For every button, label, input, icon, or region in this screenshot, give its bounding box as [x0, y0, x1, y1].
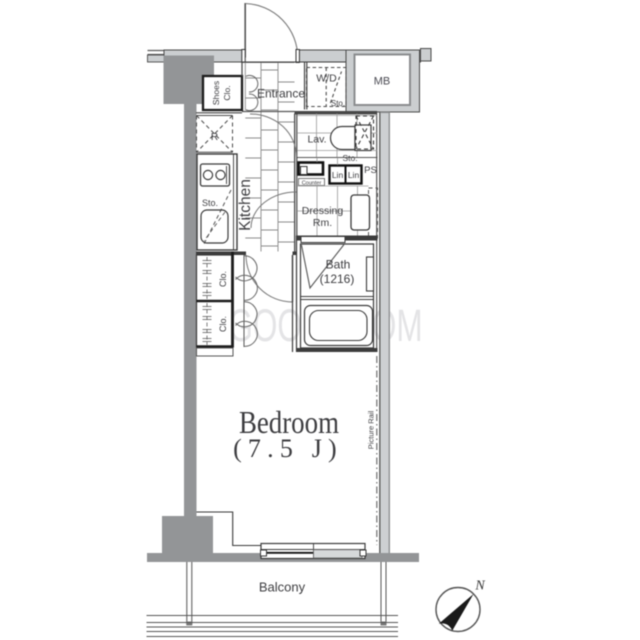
- svg-text:Picture Rail: Picture Rail: [367, 411, 376, 450]
- svg-text:Sto.: Sto.: [331, 99, 345, 108]
- svg-text:(1216): (1216): [320, 272, 355, 286]
- svg-text:N: N: [474, 579, 485, 594]
- svg-text:Clo.: Clo.: [218, 271, 228, 287]
- svg-text:Bath: Bath: [326, 258, 351, 272]
- svg-text:Sto.: Sto.: [202, 198, 218, 208]
- svg-text:(7.5 J): (7.5 J): [233, 434, 343, 463]
- svg-text:Shoes: Shoes: [211, 81, 221, 105]
- svg-text:Counter: Counter: [302, 180, 322, 186]
- svg-text:Clo.: Clo.: [218, 316, 228, 332]
- svg-text:Lav.: Lav.: [307, 134, 326, 146]
- svg-text:Lin: Lin: [332, 170, 344, 180]
- svg-text:Rm.: Rm.: [313, 217, 332, 229]
- svg-text:Clo.: Clo.: [222, 85, 232, 100]
- svg-text:Entrance: Entrance: [257, 87, 305, 101]
- svg-text:PS: PS: [364, 165, 377, 176]
- svg-text:Balcony: Balcony: [259, 580, 306, 595]
- svg-text:R: R: [211, 132, 218, 143]
- svg-text:Lin: Lin: [348, 170, 360, 180]
- svg-text:Dressing: Dressing: [302, 205, 344, 217]
- svg-text:MB: MB: [374, 76, 391, 88]
- svg-text:W/D: W/D: [316, 73, 337, 85]
